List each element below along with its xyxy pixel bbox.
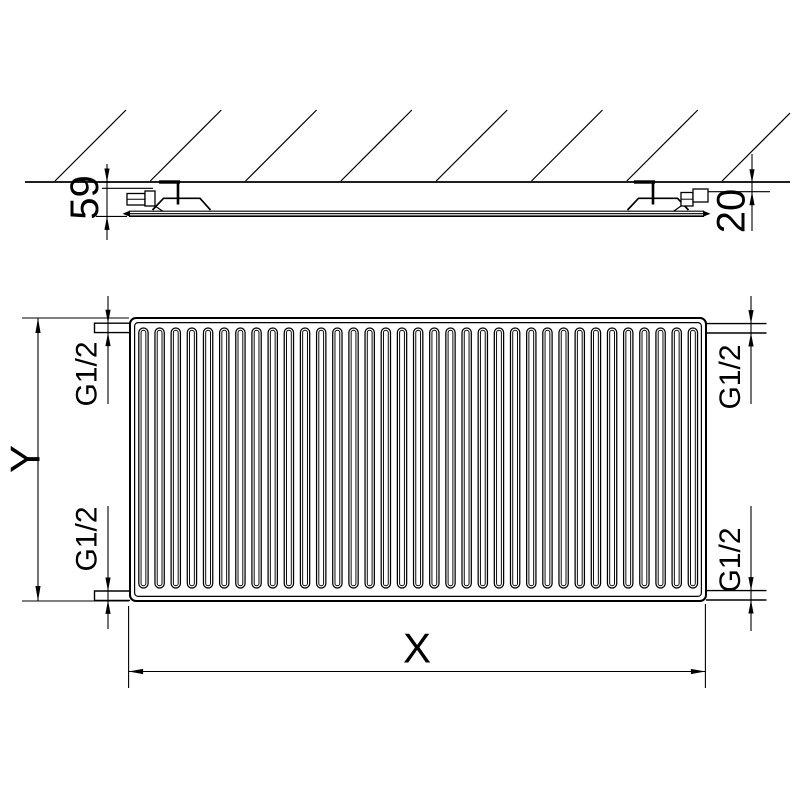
dimension-label-conn: G1/2 (714, 344, 747, 409)
fin-outer (462, 328, 471, 588)
fitting-diagonal (674, 206, 682, 211)
hatch-line (55, 110, 126, 181)
dimension-label-depth: 59 (63, 175, 107, 220)
fin-outer (381, 328, 390, 588)
arrowhead-up-icon (105, 333, 110, 347)
dimension-label-conn: G1/2 (71, 506, 104, 571)
convector-fins (139, 328, 698, 588)
dimension-label-height: Y (2, 445, 49, 473)
dimension-conn-top-right: G1/2 (714, 296, 754, 410)
dimension-label-width: X (403, 625, 431, 672)
connection-stub-top-left (95, 323, 131, 332)
fin-outer (430, 328, 439, 588)
front-view: Y X G1/2 G1/2 (2, 296, 767, 688)
fin-outer (333, 328, 342, 588)
fin-outer (510, 328, 519, 588)
dimension-depth-59: 59 (63, 164, 127, 240)
fin-outer (252, 328, 261, 588)
fin-outer (317, 328, 326, 588)
fin-outer (268, 328, 277, 588)
wall-hatch-lines (55, 110, 790, 181)
arrowhead-down-icon (35, 586, 40, 601)
fin-outer (236, 328, 245, 588)
dimension-label-wall-gap: 20 (710, 189, 754, 234)
hatch-line (722, 113, 790, 181)
arrowhead-up-icon (105, 600, 110, 614)
fin-outer (446, 328, 455, 588)
fin-outer (591, 328, 600, 588)
arrowhead-down-icon (748, 310, 753, 324)
fitting-nut (693, 189, 708, 202)
fitting-diagonal (155, 206, 163, 211)
hatch-line (246, 110, 317, 181)
dimension-conn-bottom-right: G1/2 (714, 506, 754, 631)
dimension-height-Y: Y (2, 318, 130, 601)
hatch-line (341, 110, 412, 181)
fin-outer (656, 328, 665, 588)
hatch-line (627, 110, 698, 181)
dimension-conn-bottom-left: G1/2 (71, 506, 111, 629)
fin-outer (607, 328, 616, 588)
fin-outer (624, 328, 633, 588)
bracket-clamp (628, 198, 689, 210)
technical-drawing-page: 59 20 (0, 0, 800, 800)
hatch-line (532, 110, 603, 181)
dimension-conn-top-left: G1/2 (71, 296, 111, 407)
fin-outer (365, 328, 374, 588)
dimension-label-conn: G1/2 (714, 527, 747, 592)
fin-outer (543, 328, 552, 588)
bracket-clamp (153, 198, 211, 210)
fin-outer (494, 328, 503, 588)
fin-outer (139, 328, 148, 588)
fin-outer (349, 328, 358, 588)
fin-outer (640, 328, 649, 588)
top-view: 59 20 (25, 110, 790, 240)
fin-outer (575, 328, 584, 588)
fin-outer (300, 328, 309, 588)
dimension-width-X: X (129, 604, 706, 688)
fin-outer (397, 328, 406, 588)
panel-profile (123, 211, 711, 217)
hatch-line (436, 110, 507, 181)
fin-outer (672, 328, 681, 588)
arrowhead-up-icon (35, 318, 40, 333)
arrowhead-up-icon (748, 600, 753, 614)
fin-outer (171, 328, 180, 588)
fin-outer (284, 328, 293, 588)
fin-outer (559, 328, 568, 588)
fin-outer (220, 328, 229, 588)
fin-outer (478, 328, 487, 588)
arrowhead-up-icon (748, 333, 753, 347)
wall-bracket-left (153, 180, 211, 210)
arrowhead-right-icon (691, 669, 706, 674)
fin-outer (414, 328, 423, 588)
arrowhead-down-icon (105, 310, 110, 324)
hatch-line (150, 110, 221, 181)
arrowhead-left-icon (129, 669, 144, 674)
connection-stub-top-right (706, 324, 767, 333)
dimension-label-conn: G1/2 (71, 341, 104, 406)
fin-outer (688, 328, 697, 588)
arrowhead-down-icon (748, 577, 753, 591)
dimension-wall-gap-20: 20 (708, 154, 770, 233)
fitting-flange (145, 191, 155, 206)
fin-outer (203, 328, 212, 588)
arrowhead-down-icon (749, 169, 754, 183)
radiator-dimension-drawing: 59 20 (0, 0, 800, 800)
fin-outer (527, 328, 536, 588)
arrowhead-down-icon (105, 578, 110, 592)
connection-stub-bottom-left (95, 591, 131, 600)
fin-outer (187, 328, 196, 588)
wall-bracket-right (628, 180, 689, 210)
fin-outer (155, 328, 164, 588)
